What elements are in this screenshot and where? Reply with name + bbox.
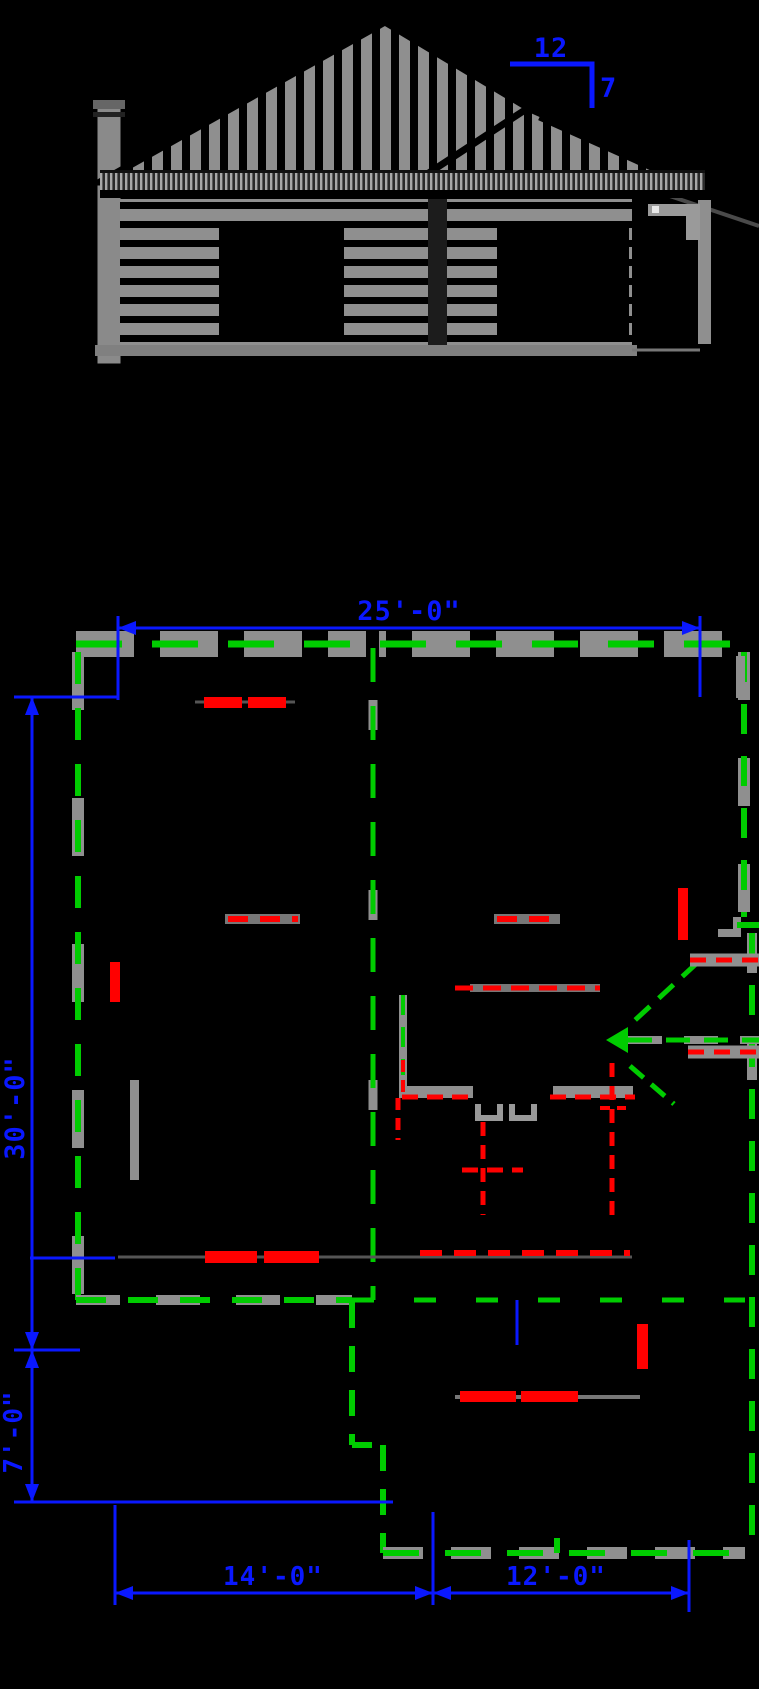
- foundation: [95, 345, 700, 356]
- roof-edge-top: [76, 628, 745, 660]
- interior-demo-segments: [225, 919, 600, 988]
- dim-left-offset-label: 7'-0": [0, 1390, 29, 1473]
- bay-window-marker: [678, 888, 688, 940]
- eave-fascia: [100, 170, 710, 198]
- elevation-drawing: 12 7: [93, 22, 759, 365]
- garage-markers: [455, 1300, 648, 1402]
- center-post: [428, 199, 447, 345]
- porch-post: [648, 200, 711, 344]
- right-opening: [497, 221, 629, 342]
- dim-bottom-left-label: 14'-0": [223, 1562, 323, 1592]
- dim-bottom-right-label: 12'-0": [506, 1562, 606, 1592]
- top-wall-window-markers: [195, 697, 295, 708]
- pitch-rise-label: 7: [600, 73, 617, 104]
- left-opening: [219, 221, 344, 342]
- interior-wall-with-door: [402, 1063, 635, 1215]
- pitch-run-label: 12: [534, 33, 569, 64]
- dimension-left-height: 30'-0" 7'-0": [0, 697, 393, 1502]
- left-interior-wall: [130, 1080, 139, 1180]
- dim-left-label: 30'-0": [0, 1056, 31, 1160]
- hall-partition: [398, 995, 403, 1140]
- bay-arrow: [606, 1027, 628, 1053]
- bay-outline: [606, 917, 759, 1553]
- blueprint-canvas: 12 7: [0, 0, 759, 1689]
- double-door-symbol: [478, 1104, 534, 1118]
- garage-extension-outline: [352, 1302, 745, 1553]
- floor-plan-drawing: 25'-0" 30'-0" 7'-0" 14'-0" 12'-0": [0, 596, 759, 1612]
- dim-top-label: 25'-0": [357, 596, 461, 627]
- left-wall-window-marker: [110, 962, 120, 1002]
- roof-pitch-symbol: 12 7: [510, 33, 617, 108]
- roof-edge-right: [736, 652, 745, 917]
